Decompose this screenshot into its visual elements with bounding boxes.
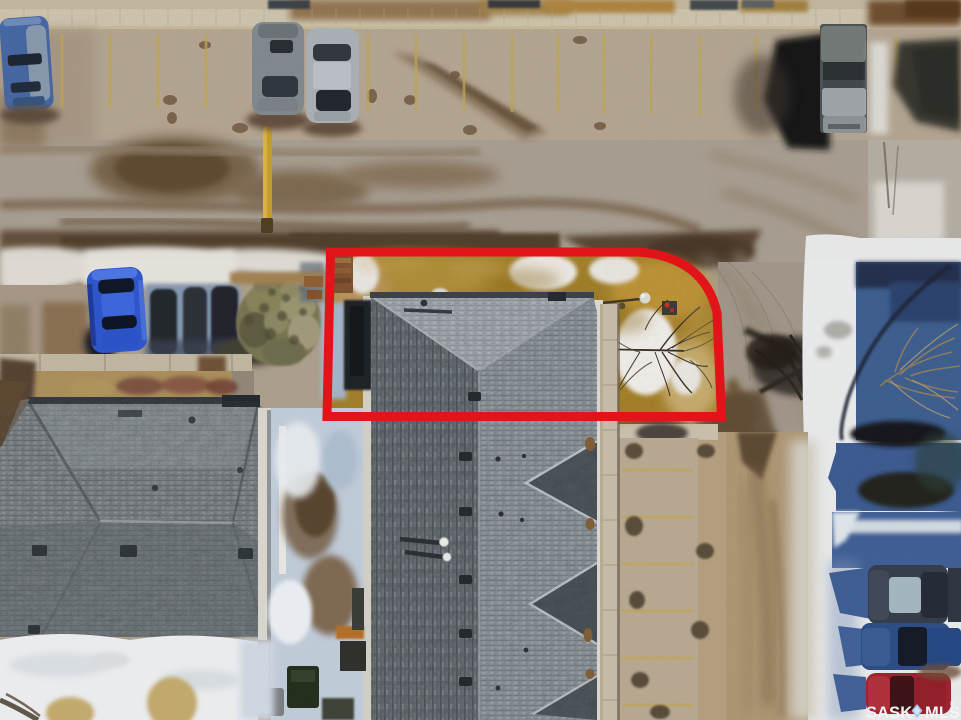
svg-text:®: ® bbox=[950, 700, 956, 708]
svg-text:SASK: SASK bbox=[866, 704, 912, 720]
